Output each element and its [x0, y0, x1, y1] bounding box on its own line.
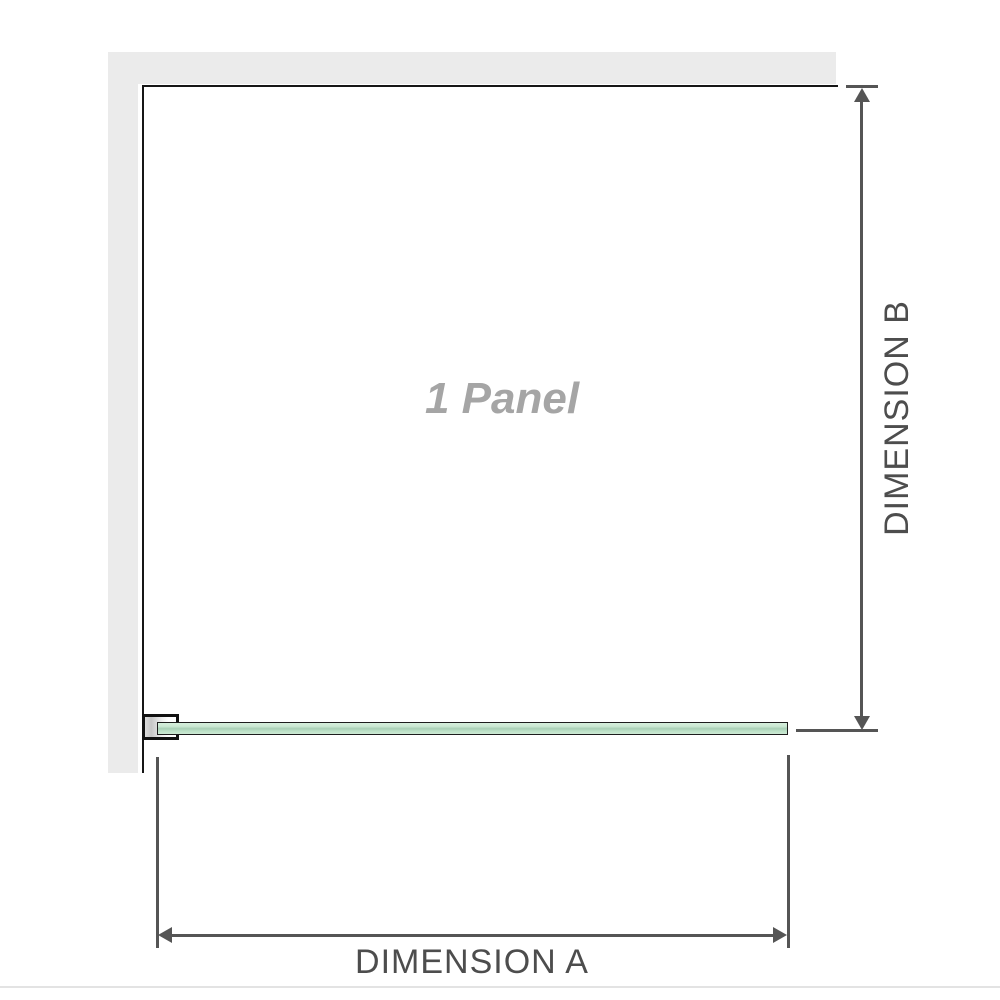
dim-b-line — [860, 100, 863, 718]
wall-edge-line-top — [143, 85, 838, 87]
dim-a-arrow-right-icon — [773, 927, 787, 943]
dim-a-line — [170, 934, 775, 937]
wall-left — [108, 52, 138, 773]
dim-b-label: DIMENSION B — [877, 268, 917, 568]
dim-a-tick-left — [156, 757, 159, 948]
wall-top — [108, 52, 836, 84]
wall-edge-line-left — [142, 85, 144, 773]
diagram-canvas: 1 Panel DIMENSION B DIMENSION A — [0, 0, 1000, 1000]
dim-a-arrow-left-icon — [158, 927, 172, 943]
glass-panel — [157, 722, 788, 735]
dim-b-arrow-down-icon — [854, 716, 870, 730]
dim-b-arrow-up-icon — [854, 88, 870, 102]
dim-a-tick-right — [787, 755, 790, 948]
dim-a-label: DIMENSION A — [272, 944, 672, 980]
bottom-separator-line — [0, 986, 1000, 988]
panel-label: 1 Panel — [302, 375, 702, 423]
